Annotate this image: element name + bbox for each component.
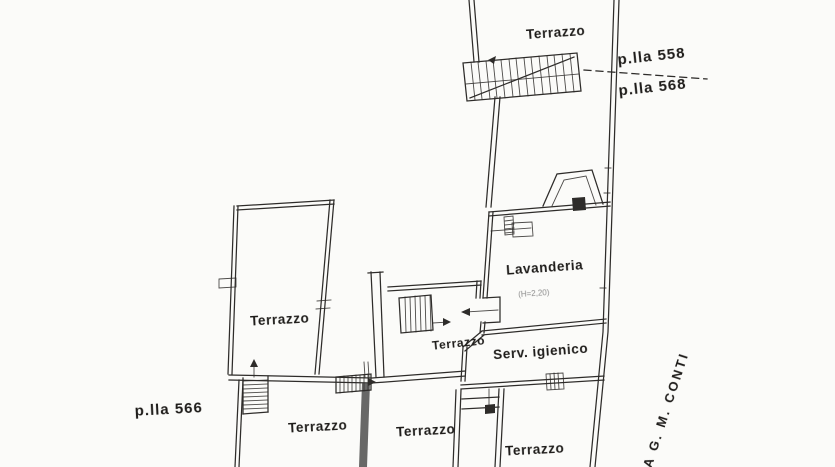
- door-direction-arrow-icon: [461, 308, 470, 316]
- door-post: [485, 404, 495, 414]
- staircase-bottom-left: [243, 359, 268, 414]
- staircase-middle: [399, 295, 451, 333]
- door-hatch: [550, 373, 559, 389]
- stair-direction-arrow-icon: [368, 378, 376, 386]
- room-label-terrazzo-bottom-left: Terrazzo: [288, 417, 348, 435]
- room-label-serv-igienico: Serv. igienico: [493, 341, 589, 363]
- laundry-door: [461, 297, 500, 323]
- room-label-terrazzo-left: Terrazzo: [250, 310, 310, 328]
- left-terrace-walls: [219, 200, 334, 374]
- room-label-terrazzo-bottom-center: Terrazzo: [396, 421, 456, 439]
- parcel-label-568: p.lla 568: [618, 76, 688, 100]
- stair-direction-arrow-icon: [443, 318, 451, 326]
- wall-pillar: [572, 197, 586, 211]
- bottom-dividing-wall: [229, 371, 465, 383]
- window-marker: [219, 278, 236, 288]
- room-label-terrazzo-top: Terrazzo: [526, 23, 586, 42]
- staircase-top: [463, 53, 581, 101]
- parcel-label-558: p.lla 558: [617, 45, 687, 69]
- thick-wall: [359, 383, 370, 467]
- labels-layer: Terrazzo p.lla 558 p.lla 568 Lavanderia …: [134, 23, 691, 467]
- stair-direction-arrow-icon: [488, 56, 496, 64]
- room-label-lavanderia: Lavanderia: [506, 257, 584, 277]
- room-label-terrazzo-bottom-right: Terrazzo: [505, 440, 565, 458]
- floor-plan-drawing: Terrazzo p.lla 558 p.lla 568 Lavanderia …: [0, 0, 835, 467]
- parcel-label-566: p.lla 566: [134, 399, 203, 420]
- street-name-label: VIA G. M. CONTI: [635, 350, 692, 467]
- stair-direction-arrow-icon: [250, 359, 258, 367]
- middle-terrace-walls: [368, 272, 481, 377]
- scanned-floor-plan-page: Terrazzo p.lla 558 p.lla 568 Lavanderia …: [0, 0, 835, 467]
- room-label-terrazzo-mid: Terrazzo: [431, 333, 485, 352]
- bottom-right-terrace-walls: [462, 389, 504, 467]
- parcel-boundary-dashed-line: [584, 70, 707, 79]
- room-height-note: (H=2,20): [518, 288, 550, 299]
